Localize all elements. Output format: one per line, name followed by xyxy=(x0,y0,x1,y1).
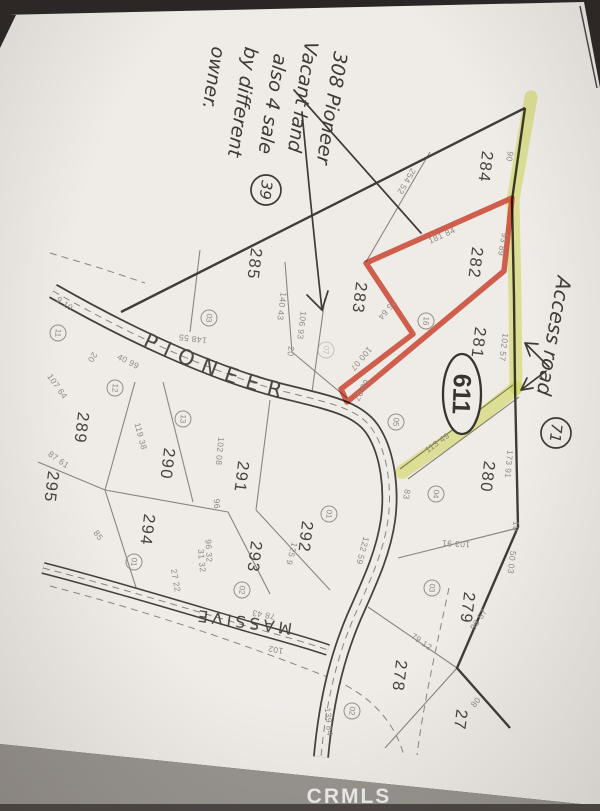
dim: 96 xyxy=(212,498,223,509)
svg-text:03: 03 xyxy=(204,313,214,323)
svg-text:01: 01 xyxy=(129,557,139,567)
svg-text:02: 02 xyxy=(347,706,357,716)
dim: 83 xyxy=(401,489,413,501)
svg-text:611: 611 xyxy=(447,373,476,414)
svg-text:13: 13 xyxy=(178,414,188,424)
photo-of-plat-map: 284 282 283 285 281 280 279 278 27 289 2… xyxy=(0,0,600,811)
svg-text:71: 71 xyxy=(546,422,566,443)
svg-text:11: 11 xyxy=(53,328,63,338)
svg-text:12: 12 xyxy=(110,383,120,393)
route-611-oval: 611 xyxy=(443,354,481,434)
svg-text:05: 05 xyxy=(391,417,401,427)
crmls-watermark: CRMLS xyxy=(307,785,392,808)
svg-text:03: 03 xyxy=(427,583,437,593)
dim: 31 32 xyxy=(196,549,208,573)
svg-text:16: 16 xyxy=(421,316,431,326)
svg-text:02: 02 xyxy=(237,585,247,595)
bottom-dark-strip xyxy=(0,804,600,811)
parcel-label: 27 xyxy=(450,708,470,731)
plat-map-svg: 284 282 283 285 281 280 279 278 27 289 2… xyxy=(0,0,600,811)
svg-text:01: 01 xyxy=(324,509,334,519)
dim: 20 xyxy=(285,346,296,357)
svg-text:04: 04 xyxy=(431,489,441,499)
dim: 90 xyxy=(504,151,516,163)
svg-text:07: 07 xyxy=(321,345,331,355)
svg-text:39: 39 xyxy=(256,179,276,200)
dim: 10 xyxy=(511,521,522,532)
dim: 103 91 xyxy=(441,538,470,549)
